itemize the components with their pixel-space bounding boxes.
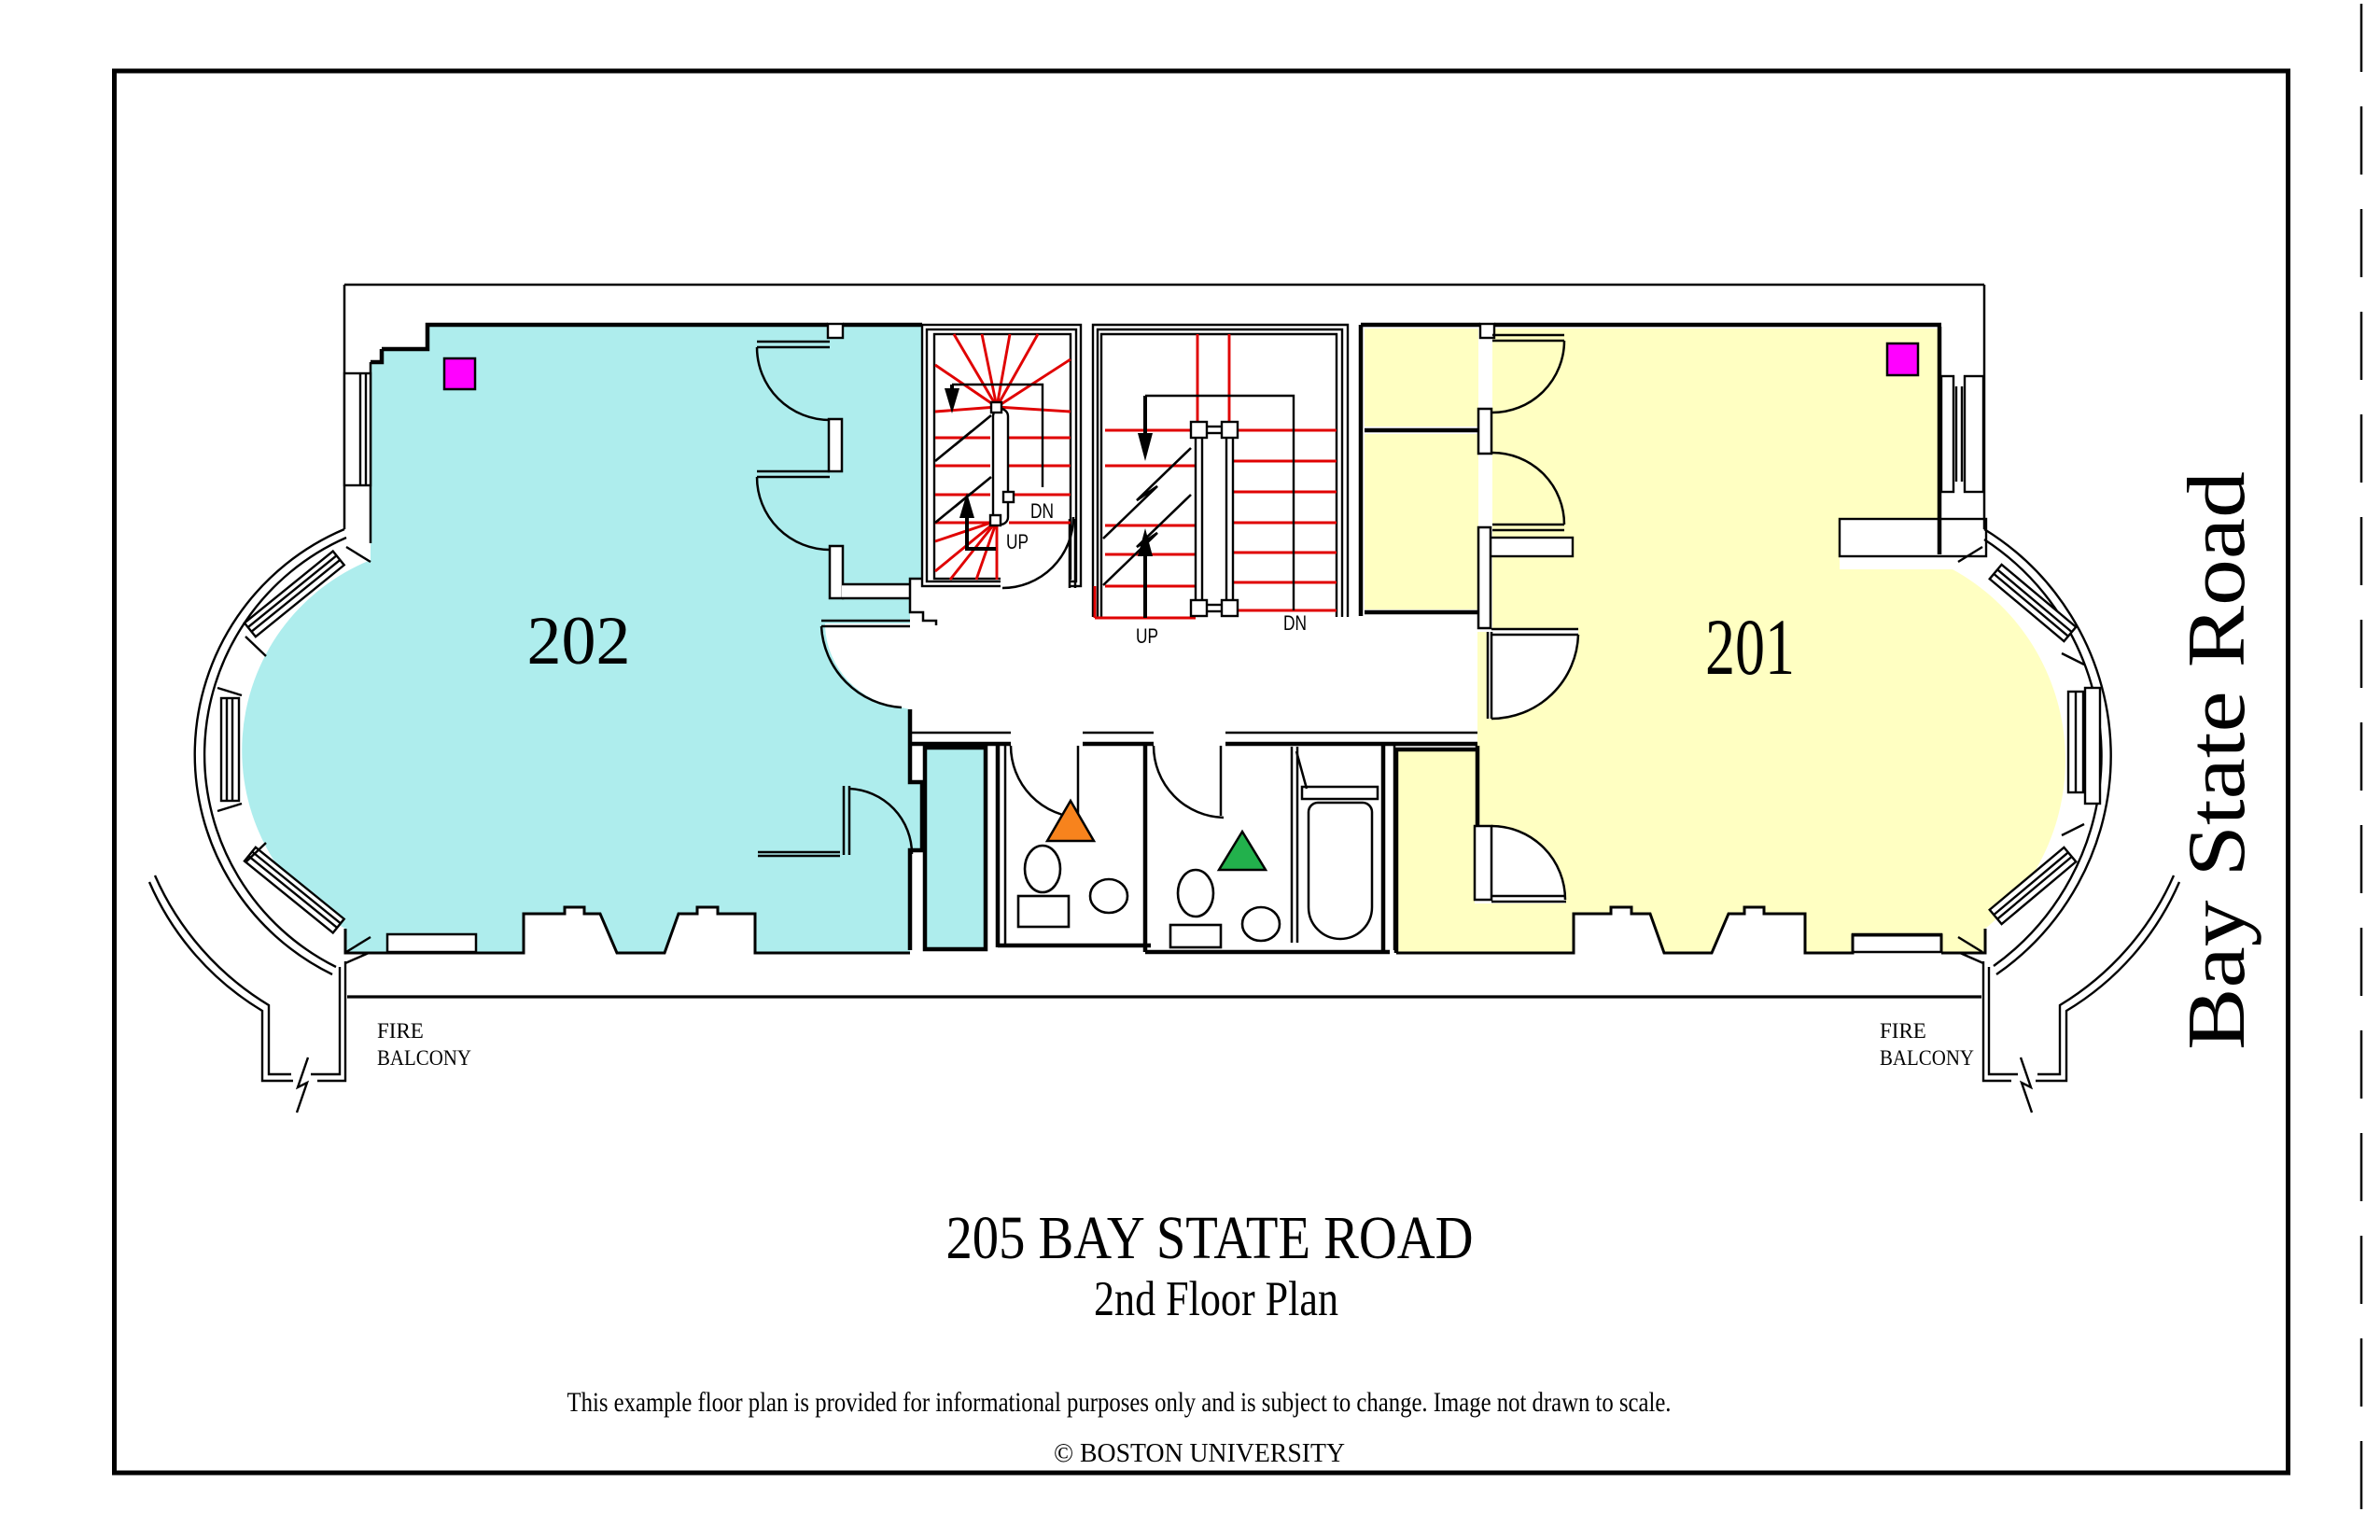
svg-text:Bay State Road: Bay State Road bbox=[2172, 471, 2262, 1050]
svg-text:BALCONY: BALCONY bbox=[1880, 1046, 1974, 1070]
svg-text:© BOSTON UNIVERSITY: © BOSTON UNIVERSITY bbox=[1054, 1438, 1345, 1468]
svg-text:UP: UP bbox=[1136, 624, 1158, 648]
svg-text:DN: DN bbox=[1283, 611, 1307, 635]
svg-text:2nd Floor Plan: 2nd Floor Plan bbox=[1094, 1272, 1338, 1326]
svg-text:UP: UP bbox=[1006, 530, 1029, 553]
svg-text:FIRE: FIRE bbox=[1880, 1019, 1926, 1043]
svg-text:FIRE: FIRE bbox=[377, 1019, 424, 1043]
svg-text:DN: DN bbox=[1030, 499, 1054, 523]
svg-text:205 BAY STATE ROAD: 205 BAY STATE ROAD bbox=[946, 1204, 1474, 1272]
svg-text:202: 202 bbox=[527, 603, 631, 679]
svg-text:BALCONY: BALCONY bbox=[377, 1046, 471, 1070]
svg-text:201: 201 bbox=[1705, 602, 1795, 692]
svg-text:This example floor plan is pro: This example floor plan is provided for … bbox=[567, 1387, 1672, 1418]
